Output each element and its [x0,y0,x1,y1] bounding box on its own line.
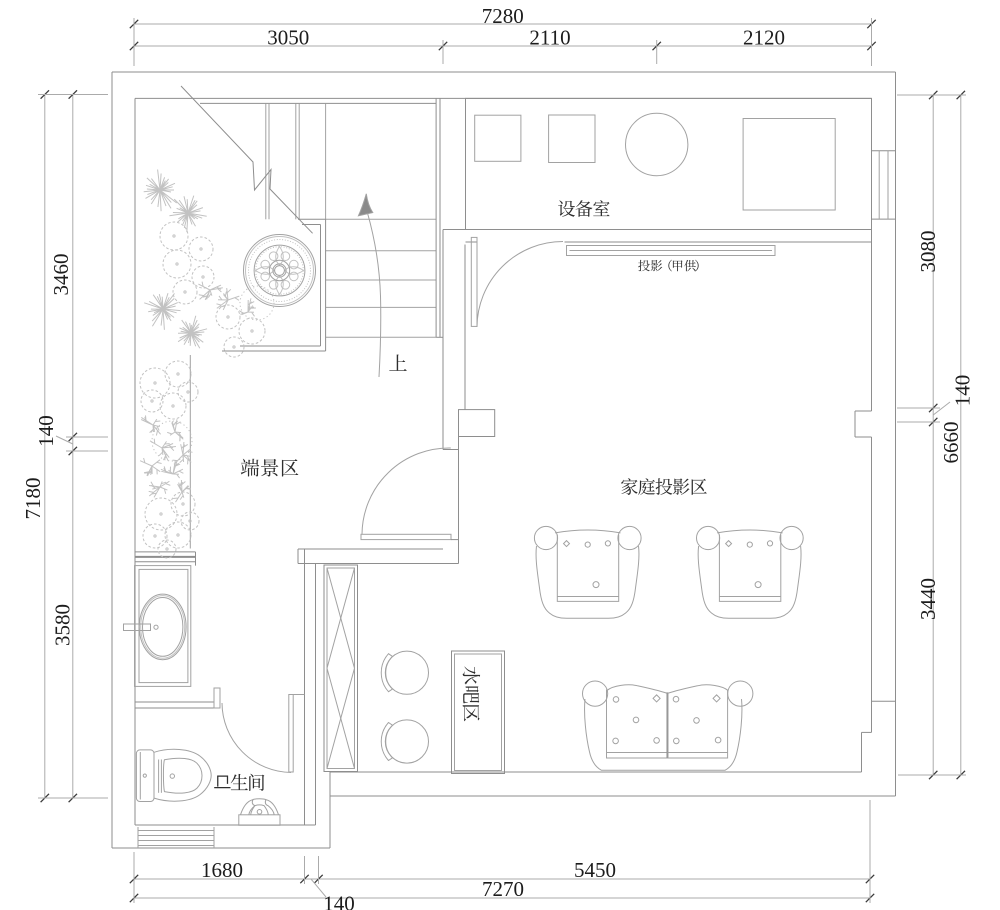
svg-text:3580: 3580 [50,604,74,646]
svg-text:7180: 7180 [21,478,45,520]
svg-text:140: 140 [950,375,974,407]
svg-text:3080: 3080 [916,231,940,273]
svg-text:140: 140 [34,415,58,447]
svg-text:3050: 3050 [267,25,309,49]
svg-text:7270: 7270 [482,877,524,901]
svg-text:3440: 3440 [916,578,940,620]
svg-text:6660: 6660 [939,422,963,464]
svg-text:140: 140 [323,891,355,910]
svg-text:2110: 2110 [529,25,570,49]
svg-text:5450: 5450 [574,858,616,882]
svg-text:2120: 2120 [743,25,785,49]
svg-text:1680: 1680 [201,858,243,882]
svg-text:3460: 3460 [49,254,73,296]
svg-text:7280: 7280 [482,4,524,28]
